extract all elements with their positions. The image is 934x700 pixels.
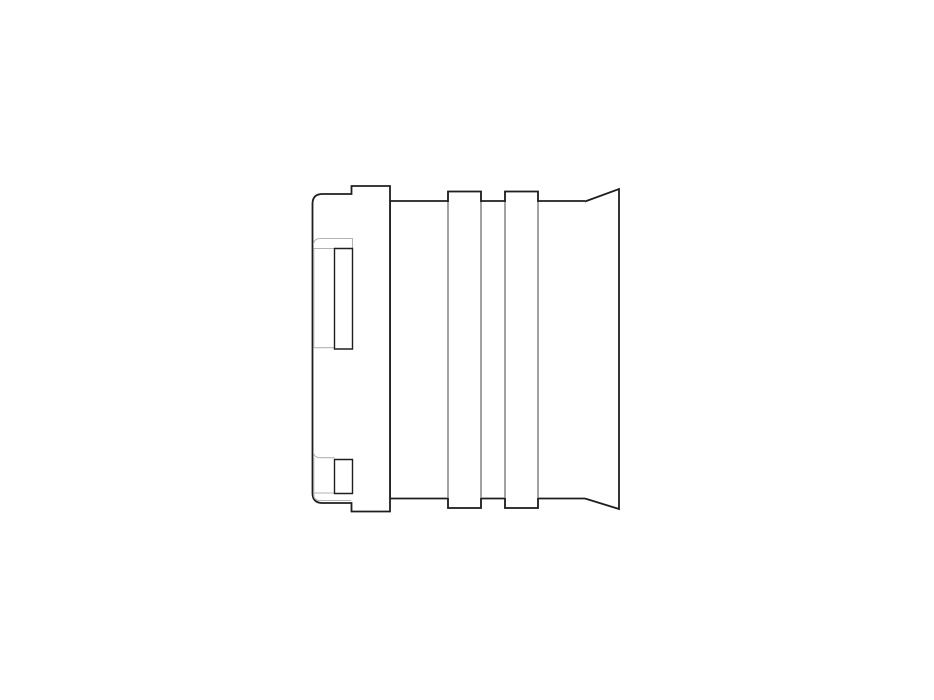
fitting-drawing [0, 0, 934, 700]
rib-2 [505, 192, 538, 509]
upper-latch-window [335, 249, 353, 350]
lower-latch-window [335, 460, 353, 494]
drawing-page [0, 0, 934, 700]
bell-mouth [585, 189, 619, 509]
rib-1 [448, 192, 481, 509]
barrel [390, 201, 585, 499]
